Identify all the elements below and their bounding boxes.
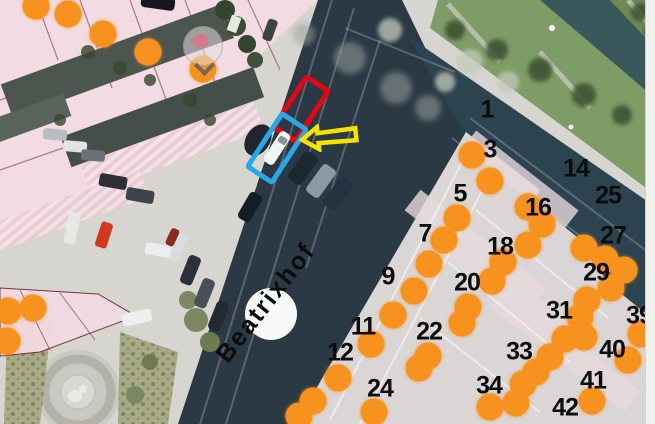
house-number-label[interactable]: 22 <box>416 320 442 345</box>
house-number-label[interactable]: 1 <box>481 98 494 123</box>
aerial-map-view[interactable]: 1357911121416182022242527293133343940414… <box>0 0 655 424</box>
house-number-label[interactable]: 20 <box>454 271 480 296</box>
house-number-label[interactable]: 18 <box>487 235 513 260</box>
house-number-label[interactable]: 31 <box>546 299 572 324</box>
house-number-label[interactable]: 3 <box>484 138 497 163</box>
house-number-label[interactable]: 11 <box>351 315 375 340</box>
house-number-label[interactable]: 9 <box>382 265 395 290</box>
house-number-label[interactable]: 16 <box>525 196 551 221</box>
house-number-label[interactable]: 40 <box>599 338 625 363</box>
house-number-label[interactable]: 34 <box>476 374 502 399</box>
house-number-label[interactable]: 33 <box>506 340 532 365</box>
house-number-label[interactable]: 29 <box>583 261 609 286</box>
house-number-label[interactable]: 7 <box>419 222 432 247</box>
house-number-label[interactable]: 14 <box>563 157 589 182</box>
house-number-label[interactable]: 27 <box>600 224 626 249</box>
house-number-label[interactable]: 12 <box>327 341 353 366</box>
viewport-edge-strip <box>645 0 655 424</box>
house-number-label[interactable]: 5 <box>454 182 467 207</box>
house-number-label[interactable]: 42 <box>552 396 578 421</box>
car-windshield <box>276 135 287 146</box>
house-number-label[interactable]: 41 <box>580 369 606 394</box>
house-numbers-layer: 1357911121416182022242527293133343940414… <box>0 0 655 424</box>
house-number-label[interactable]: 24 <box>367 377 393 402</box>
house-number-label[interactable]: 25 <box>595 184 621 209</box>
